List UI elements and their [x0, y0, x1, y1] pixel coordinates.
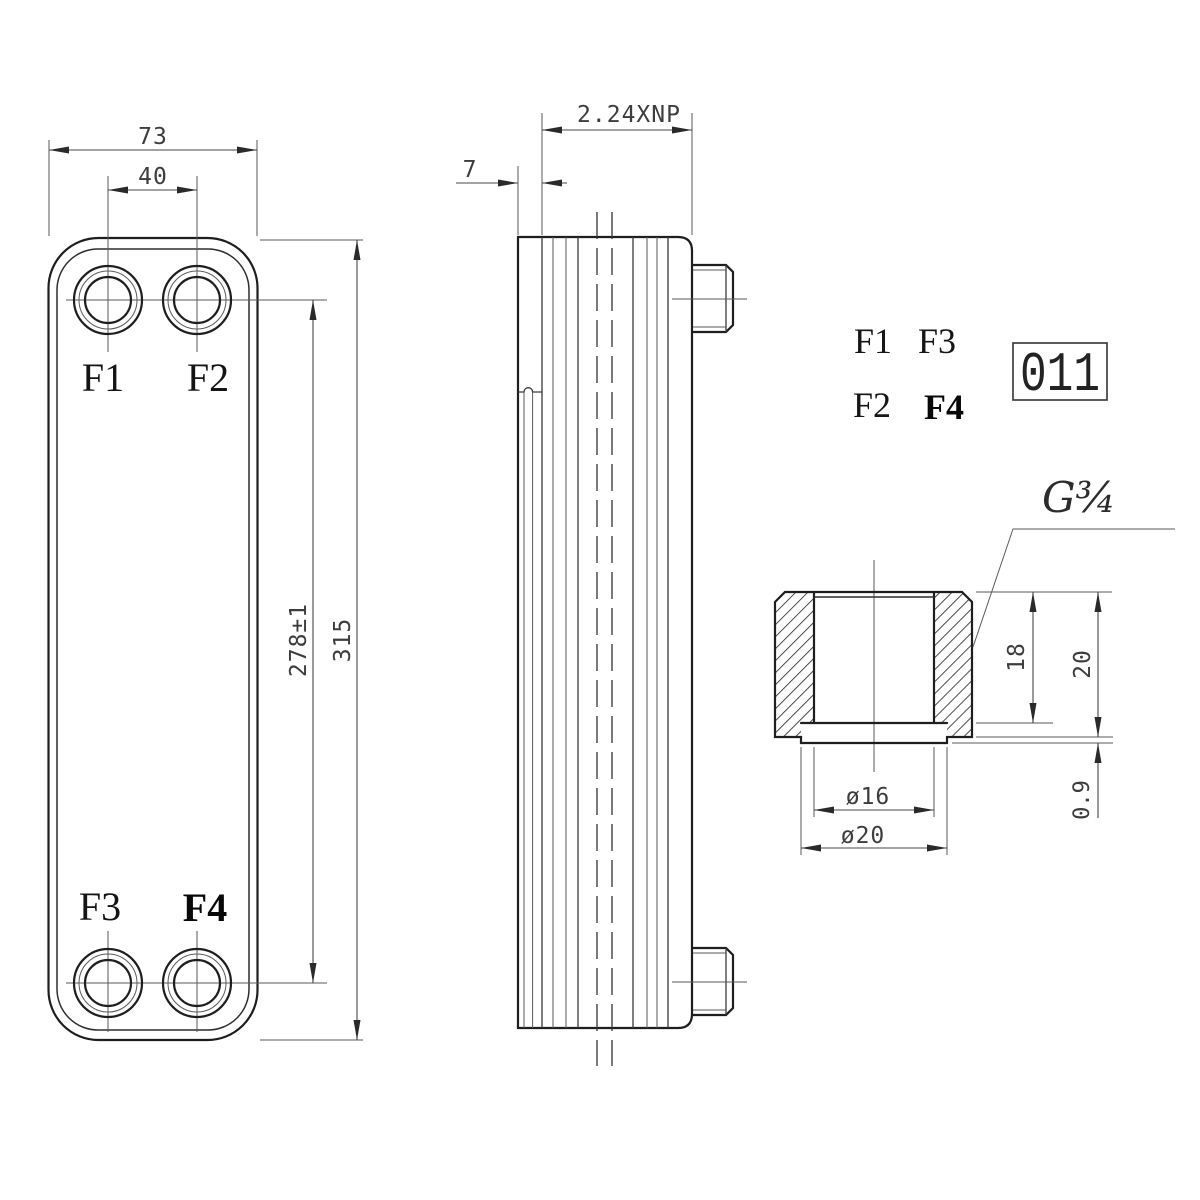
- dim-end-plate: 7: [463, 157, 478, 183]
- legend-f3: F3: [918, 321, 956, 361]
- heat-exchanger-drawing: 73 40 278±1 315 F1 F2 F3 F4: [0, 0, 1200, 1200]
- port-label-f1: F1: [82, 355, 124, 400]
- legend-f4: F4: [924, 387, 964, 427]
- engineering-drawing-page: 73 40 278±1 315 F1 F2 F3 F4: [0, 0, 1200, 1200]
- thread-label: G¾: [1042, 473, 1116, 522]
- side-dimension-lines: [456, 130, 692, 183]
- thread-leader: [973, 529, 1175, 647]
- dim-port-spacing-vertical: 278±1: [286, 603, 312, 677]
- dim-port-spacing-horizontal: 40: [138, 164, 168, 190]
- fitting-detail-view: G¾ 18 20 0.9 ø16 ø20: [775, 473, 1175, 855]
- side-seam-detail: [518, 388, 542, 1028]
- dim-bore-diameter: ø16: [846, 784, 891, 810]
- side-top-port-boss: [672, 265, 747, 332]
- side-body-outline: [518, 237, 692, 1028]
- dim-total-height: 20: [1070, 649, 1096, 679]
- legend-f1: F1: [854, 321, 892, 361]
- side-view: 2.24XNP 7: [456, 102, 747, 1066]
- port-label-f3: F3: [79, 884, 121, 929]
- dim-lip-thickness: 0.9: [1070, 780, 1095, 820]
- legend-f2: F2: [853, 385, 891, 425]
- side-extension-lines: [518, 113, 692, 235]
- dim-thread-depth: 18: [1004, 642, 1030, 672]
- side-plate-lines: [542, 237, 668, 1028]
- dim-overall-height: 315: [330, 618, 356, 663]
- side-bottom-port-boss: [672, 948, 747, 1015]
- dim-overall-width: 73: [138, 124, 168, 150]
- dim-plate-stack: 2.24XNP: [577, 102, 681, 128]
- port-label-f2: F2: [187, 355, 229, 400]
- part-code: 011: [1020, 343, 1100, 407]
- front-view: 73 40 278±1 315 F1 F2 F3 F4: [49, 124, 364, 1040]
- dim-neck-diameter: ø20: [841, 823, 886, 849]
- port-legend: F1 F3 F2 F4 011: [853, 321, 1107, 427]
- port-label-f4: F4: [183, 885, 227, 930]
- side-centerline-pair: [597, 212, 612, 1066]
